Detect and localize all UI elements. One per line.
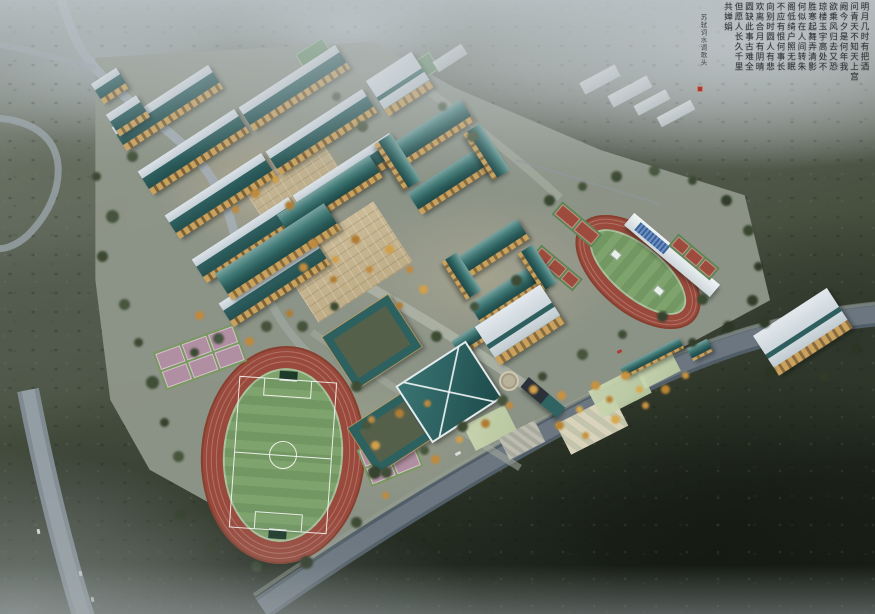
- circular-plaza: [499, 371, 519, 391]
- calligraphy-signature: 苏轼词水调歌头: [699, 14, 707, 106]
- soccer-pitch-markings: [229, 376, 337, 534]
- campus-aerial-rendering: 明月几时有把酒 问青天不知天上宫 阙今夕是何年我 欲乘风归去又恐 琼楼玉宇高处不…: [0, 0, 875, 614]
- running-track-west: [194, 341, 373, 570]
- calligraphy-seal: [697, 86, 703, 92]
- goal-east: [653, 284, 666, 297]
- goal-west: [610, 248, 623, 261]
- trees-autumn: [0, 0, 7, 7]
- goal-north: [279, 371, 298, 382]
- calligraphy-inscription: 明月几时有把酒 问青天不知天上宫 阙今夕是何年我 欲乘风归去又恐 琼楼玉宇高处不…: [711, 2, 869, 114]
- goal-south: [268, 528, 287, 539]
